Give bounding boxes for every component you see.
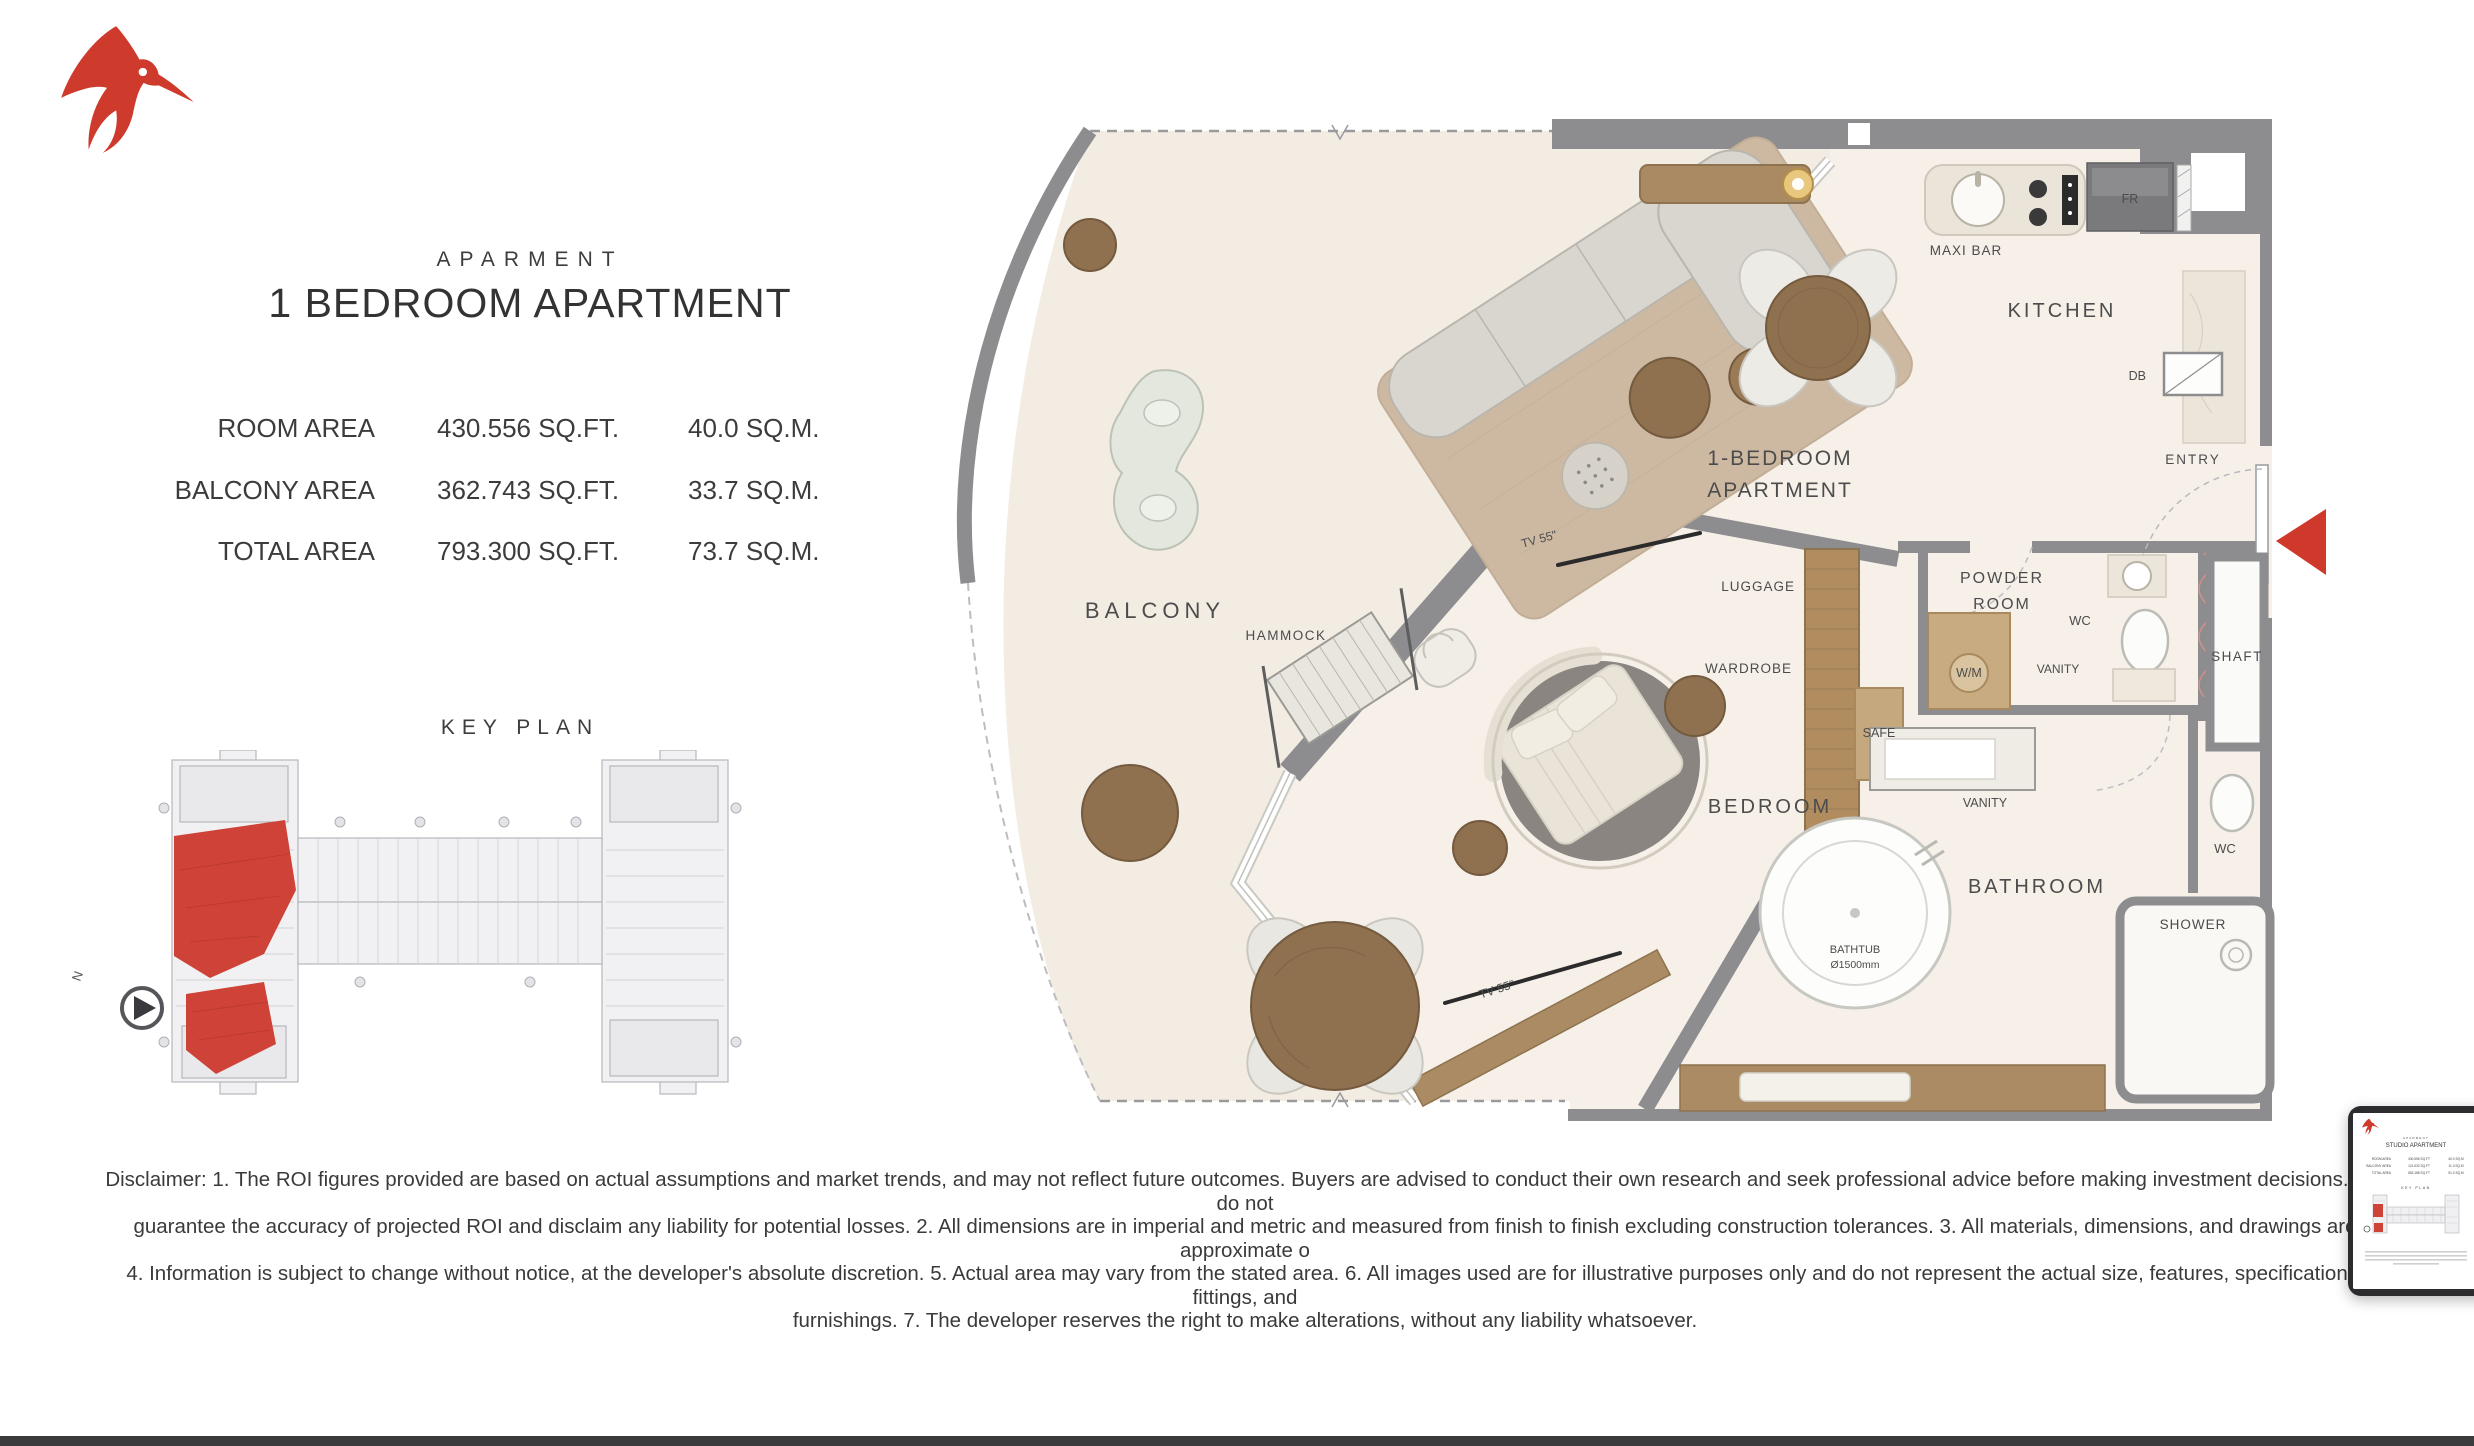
area-label: ROOM AREA (150, 413, 375, 444)
area-sqft: 793.300 SQ.FT. (437, 536, 677, 567)
powder-sink (2123, 562, 2151, 590)
unit-label-line2: APARTMENT (1707, 479, 1853, 502)
balcony-label: BALCONY (1085, 598, 1225, 623)
disclaimer: Disclaimer: 1. The ROI figures provided … (95, 1168, 2395, 1333)
area-sqm: 40.0 SQ.M. (688, 413, 868, 444)
svg-text:11.3 SQ.M: 11.3 SQ.M (2449, 1164, 2464, 1168)
area-row: ROOM AREA 430.556 SQ.FT. 40.0 SQ.M. (0, 413, 900, 447)
area-label: BALCONY AREA (150, 475, 375, 506)
svg-text:552.188 SQ.FT: 552.188 SQ.FT (2408, 1171, 2430, 1175)
nightstand (1665, 676, 1725, 736)
thumbnail-highlight (2373, 1204, 2383, 1217)
thumbnail-eyebrow: APARMENT (2403, 1136, 2429, 1140)
vanity-bath-label: VANITY (1963, 796, 2008, 810)
disclaimer-line: 4. Information is subject to change with… (95, 1262, 2395, 1309)
entry-label: ENTRY (2165, 452, 2221, 467)
nightstand (1453, 821, 1507, 875)
kitchen-label: KITCHEN (2008, 300, 2117, 322)
area-sqm: 73.7 SQ.M. (688, 536, 868, 567)
bottom-bar (0, 1436, 2474, 1446)
bath-wc (2211, 775, 2253, 831)
svg-text:ROOM AREA: ROOM AREA (2372, 1157, 2392, 1161)
safe-label: SAFE (1863, 726, 1896, 740)
burner (2029, 208, 2047, 226)
north-label: N (69, 969, 86, 983)
shaft-label: SHAFT (2211, 649, 2263, 664)
svg-text:40.0 SQ.M: 40.0 SQ.M (2448, 1157, 2464, 1161)
disclaimer-line: guarantee the accuracy of projected ROI … (95, 1215, 2395, 1262)
thumbnail-key-plan-title: KEY PLAN (2401, 1186, 2431, 1190)
vanity-powder-label: VANITY (2037, 662, 2079, 676)
wardrobe-label: WARDROBE (1705, 661, 1792, 676)
hummingbird-icon (61, 26, 194, 153)
powder-room-label-line2: ROOM (1973, 596, 2031, 613)
svg-text:51.3 SQ.M: 51.3 SQ.M (2448, 1171, 2464, 1175)
side-table (1082, 765, 1178, 861)
apartment-eyebrow: APARMENT (230, 248, 830, 272)
bedroom-label: BEDROOM (1708, 796, 1832, 818)
area-sqft: 430.556 SQ.FT. (437, 413, 677, 444)
bathtub-label-line2: Ø1500mm (1830, 959, 1879, 971)
area-sqm: 33.7 SQ.M. (688, 475, 868, 506)
entry-arrow-icon (2276, 509, 2326, 575)
wc-bath-label: WC (2214, 841, 2236, 856)
key-plan: N (60, 750, 840, 1095)
window-notch (1848, 123, 1870, 145)
compass (122, 988, 162, 1028)
key-plan-title: KEY PLAN (380, 716, 660, 740)
balcony-dining-table (1230, 901, 1439, 1110)
sideboard (1640, 165, 1813, 203)
area-row: BALCONY AREA 362.743 SQ.FT. 33.7 SQ.M. (0, 475, 900, 509)
hummingbird-logo (52, 12, 202, 172)
hammock-label: HAMMOCK (1246, 628, 1327, 643)
disclaimer-line: furnishings. 7. The developer reserves t… (95, 1309, 2395, 1333)
burner (2029, 180, 2047, 198)
side-table (1064, 219, 1116, 271)
powder-door-gap (1970, 541, 2032, 553)
fridge-label: FR (2122, 192, 2139, 206)
unit-label-line1: 1-BEDROOM (1707, 447, 1852, 470)
luggage-label: LUGGAGE (1721, 579, 1795, 594)
area-sqft: 362.743 SQ.FT. (437, 475, 677, 506)
thumbnail-page: APARMENT STUDIO APARTMENT ROOM AREA 430.… (2353, 1113, 2474, 1289)
svg-text:BALCONY AREA: BALCONY AREA (2366, 1164, 2391, 1168)
page-title: 1 BEDROOM APARTMENT (180, 280, 880, 327)
maxi-bar-label: MAXI BAR (1930, 243, 2003, 258)
svg-text:430.556 SQ.FT: 430.556 SQ.FT (2408, 1157, 2430, 1161)
powder-room-label-line1: POWDER (1960, 570, 2044, 587)
bathtub-label-line1: BATHTUB (1830, 944, 1881, 956)
shower-label: SHOWER (2160, 917, 2227, 932)
washing-machine-label: W/M (1956, 666, 1982, 680)
svg-text:121.632 SQ.FT: 121.632 SQ.FT (2408, 1164, 2430, 1168)
powder-vanity (2113, 669, 2175, 701)
wc-powder-label: WC (2069, 613, 2091, 628)
window-box (2191, 153, 2245, 211)
thumbnail-title: STUDIO APARTMENT (2386, 1143, 2447, 1149)
disclaimer-line: Disclaimer: 1. The ROI figures provided … (95, 1168, 2395, 1215)
floor-plan: BALCONY HAMMOCK TV 55" TV 55" MAXI BAR K… (940, 113, 2330, 1128)
bird-eye (139, 68, 147, 76)
svg-text:TOTAL AREA: TOTAL AREA (2372, 1171, 2392, 1175)
area-row: TOTAL AREA 793.300 SQ.FT. 73.7 SQ.M. (0, 536, 900, 570)
bathroom-label: BATHROOM (1968, 876, 2106, 898)
powder-wc (2122, 610, 2168, 672)
next-page-thumbnail[interactable]: APARMENT STUDIO APARTMENT ROOM AREA 430.… (2348, 1106, 2474, 1296)
thumbnail-area-table: ROOM AREA 430.556 SQ.FT 40.0 SQ.M BALCON… (2366, 1157, 2464, 1175)
db-label: DB (2129, 369, 2146, 383)
area-label: TOTAL AREA (150, 536, 375, 567)
